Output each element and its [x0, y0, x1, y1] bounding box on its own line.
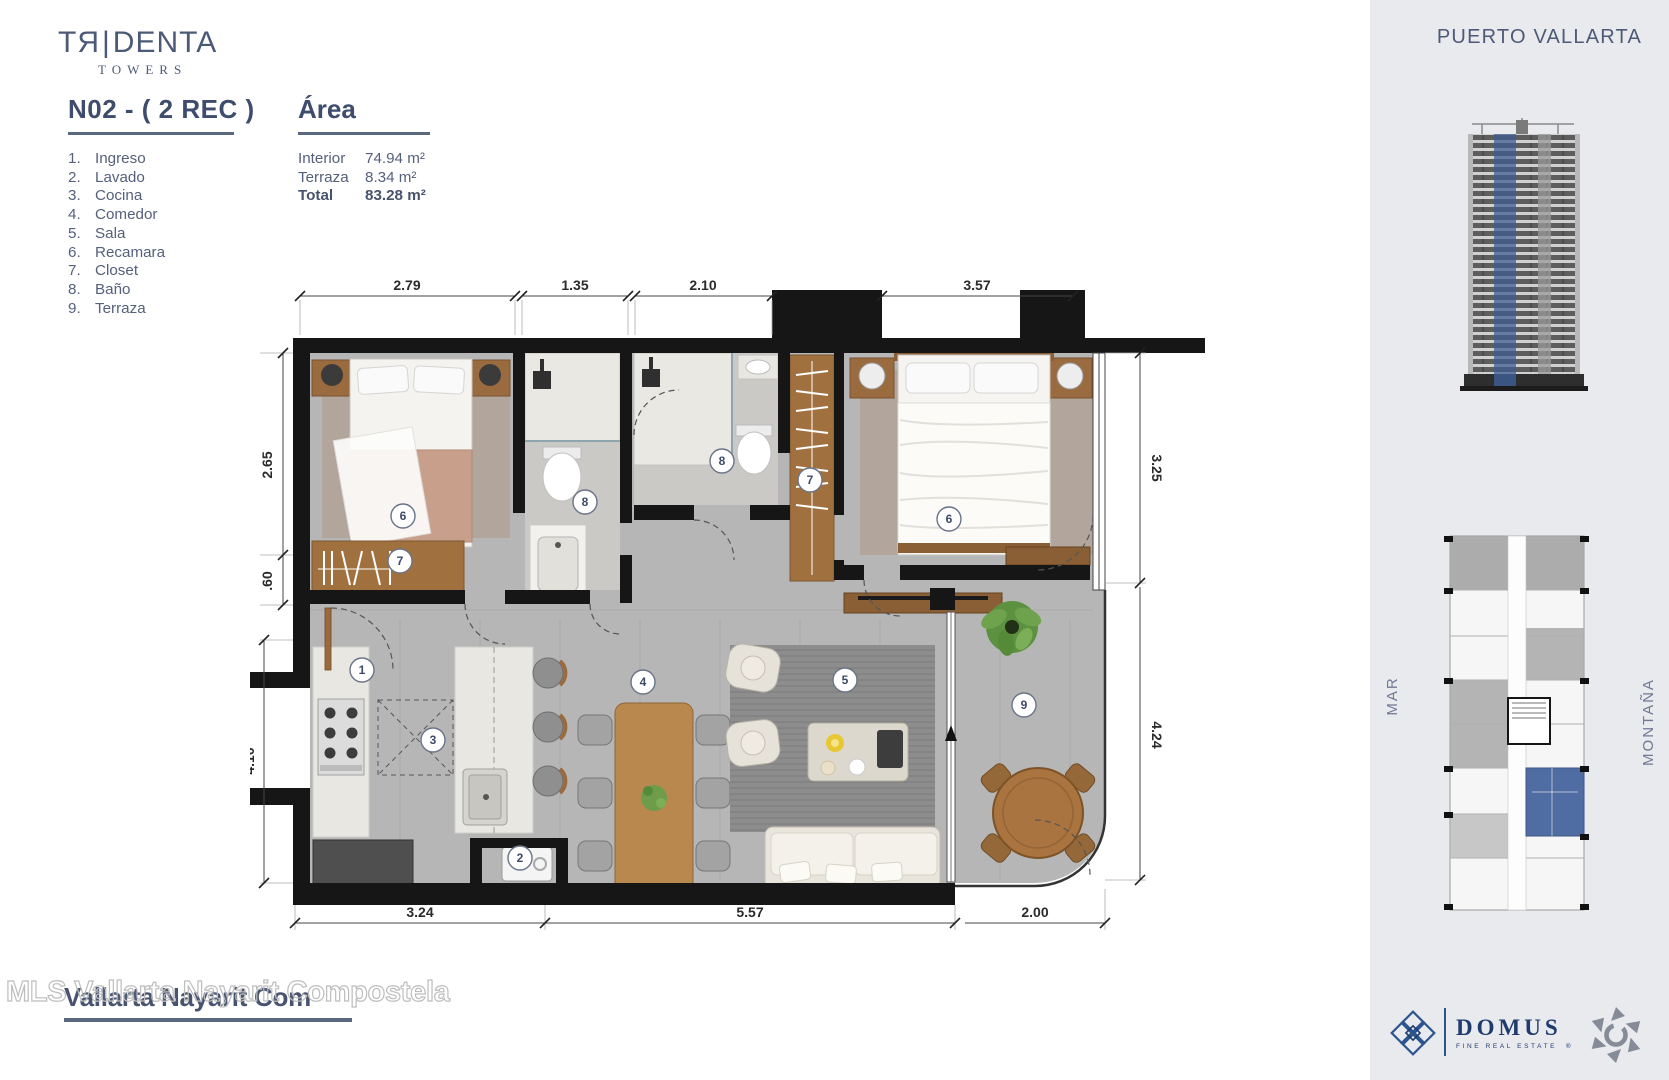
room-badge-comedor: 4	[631, 670, 655, 694]
svg-text:8: 8	[582, 495, 589, 509]
svg-text:6: 6	[400, 509, 407, 523]
legend-item: 1.Ingreso	[68, 150, 165, 169]
bedroom-2-furniture	[850, 351, 1095, 565]
room-badge-terraza: 9	[1012, 693, 1036, 717]
orientation-label-mar: MAR	[1384, 654, 1401, 738]
watermark-outline-text: MLS Vallarta Nayarit Compostela	[6, 976, 450, 1009]
svg-text:5: 5	[842, 673, 849, 687]
key-plan-stair-core	[1508, 698, 1550, 744]
svg-text:8: 8	[719, 454, 726, 468]
domus-logo: DOMUS FINE REAL ESTATE ®	[1390, 1006, 1573, 1058]
watermark-underline	[64, 1018, 352, 1022]
dim-right-2: 4.24	[1149, 721, 1165, 748]
room-badge-recamara-2: 6	[937, 507, 961, 531]
svg-text:4: 4	[640, 675, 647, 689]
room-badge-cocina: 3	[421, 728, 445, 752]
area-row-total: Total83.28 m²	[298, 187, 426, 206]
key-plan	[1392, 528, 1642, 918]
dim-bottom-3: 2.00	[1021, 904, 1048, 920]
room-badge-bano-1: 8	[573, 490, 597, 514]
area-title: Área	[298, 94, 356, 125]
brand-wordmark: TЯ|DENTA	[58, 26, 217, 60]
key-plan-plate	[1444, 536, 1589, 910]
tridenta-emblem-icon	[1585, 1004, 1647, 1066]
area-title-rule	[298, 132, 430, 135]
dim-top-1: 2.79	[393, 277, 420, 293]
room-badge-recamara-1: 6	[391, 504, 415, 528]
location-title: PUERTO VALLARTA	[1380, 26, 1642, 49]
area-row-interior: Interior74.94 m²	[298, 150, 426, 169]
room-badge-bano-2: 8	[710, 449, 734, 473]
domus-knot-icon	[1390, 1006, 1436, 1058]
key-plan-highlighted-unit	[1526, 768, 1584, 836]
room-badge-sala: 5	[833, 668, 857, 692]
brand-logo: TЯ|DENTA TOWERS	[58, 26, 217, 78]
dim-left-2: .60	[259, 571, 275, 591]
closet-1-wardrobe	[312, 541, 464, 597]
unit-title: N02 - ( 2 REC )	[68, 94, 255, 125]
terrace-table	[993, 768, 1083, 858]
brand-sub: TOWERS	[98, 62, 217, 78]
legend-item: 5.Sala	[68, 225, 165, 244]
dim-top-3: 2.10	[689, 277, 716, 293]
dim-bottom-1: 3.24	[406, 904, 433, 920]
unit-title-rule	[68, 132, 234, 135]
legend-item: 9.Terraza	[68, 300, 165, 319]
room-badge-closet-1: 7	[388, 549, 412, 573]
area-row-terraza: Terraza8.34 m²	[298, 169, 426, 188]
tower-body	[1460, 134, 1588, 391]
legend-item: 6.Recamara	[68, 244, 165, 263]
room-badge-lavado: 2	[508, 846, 532, 870]
page: PUERTO VALLARTA	[0, 0, 1669, 1080]
dim-left-1: 2.65	[259, 451, 275, 478]
svg-text:6: 6	[946, 512, 953, 526]
room-badge-closet-2: 7	[798, 468, 822, 492]
orientation-label-montana: MONTAÑA	[1640, 662, 1657, 782]
svg-text:7: 7	[807, 473, 814, 487]
tower-antenna	[1472, 118, 1574, 134]
room-legend: 1.Ingreso 2.Lavado 3.Cocina 4.Comedor 5.…	[68, 150, 165, 318]
dim-bottom-2: 5.57	[736, 904, 763, 920]
floor-plan: 2.79 1.35 2.10 3.57 2.65 .60 4.10 3.25 4…	[250, 275, 1230, 945]
dim-left-3: 4.10	[250, 747, 257, 774]
svg-text:2: 2	[517, 851, 524, 865]
tower-elevation-illustration	[1450, 116, 1598, 402]
dim-top-2: 1.35	[561, 277, 588, 293]
dim-top-4: 3.57	[963, 277, 990, 293]
domus-name: DOMUS	[1456, 1015, 1573, 1041]
bar-stools	[533, 658, 565, 796]
svg-text:7: 7	[397, 554, 404, 568]
room-badge-ingreso: 1	[350, 658, 374, 682]
svg-text:1: 1	[359, 663, 366, 677]
domus-divider	[1444, 1008, 1446, 1056]
svg-text:9: 9	[1021, 698, 1028, 712]
legend-item: 7.Closet	[68, 262, 165, 281]
dim-right-1: 3.25	[1149, 454, 1165, 481]
legend-item: 3.Cocina	[68, 187, 165, 206]
domus-tagline: FINE REAL ESTATE ®	[1456, 1043, 1573, 1050]
svg-text:3: 3	[430, 733, 437, 747]
legend-item: 4.Comedor	[68, 206, 165, 225]
legend-item: 2.Lavado	[68, 169, 165, 188]
legend-item: 8.Baño	[68, 281, 165, 300]
area-table: Interior74.94 m² Terraza8.34 m² Total83.…	[298, 150, 426, 206]
dining-furniture	[578, 703, 730, 893]
